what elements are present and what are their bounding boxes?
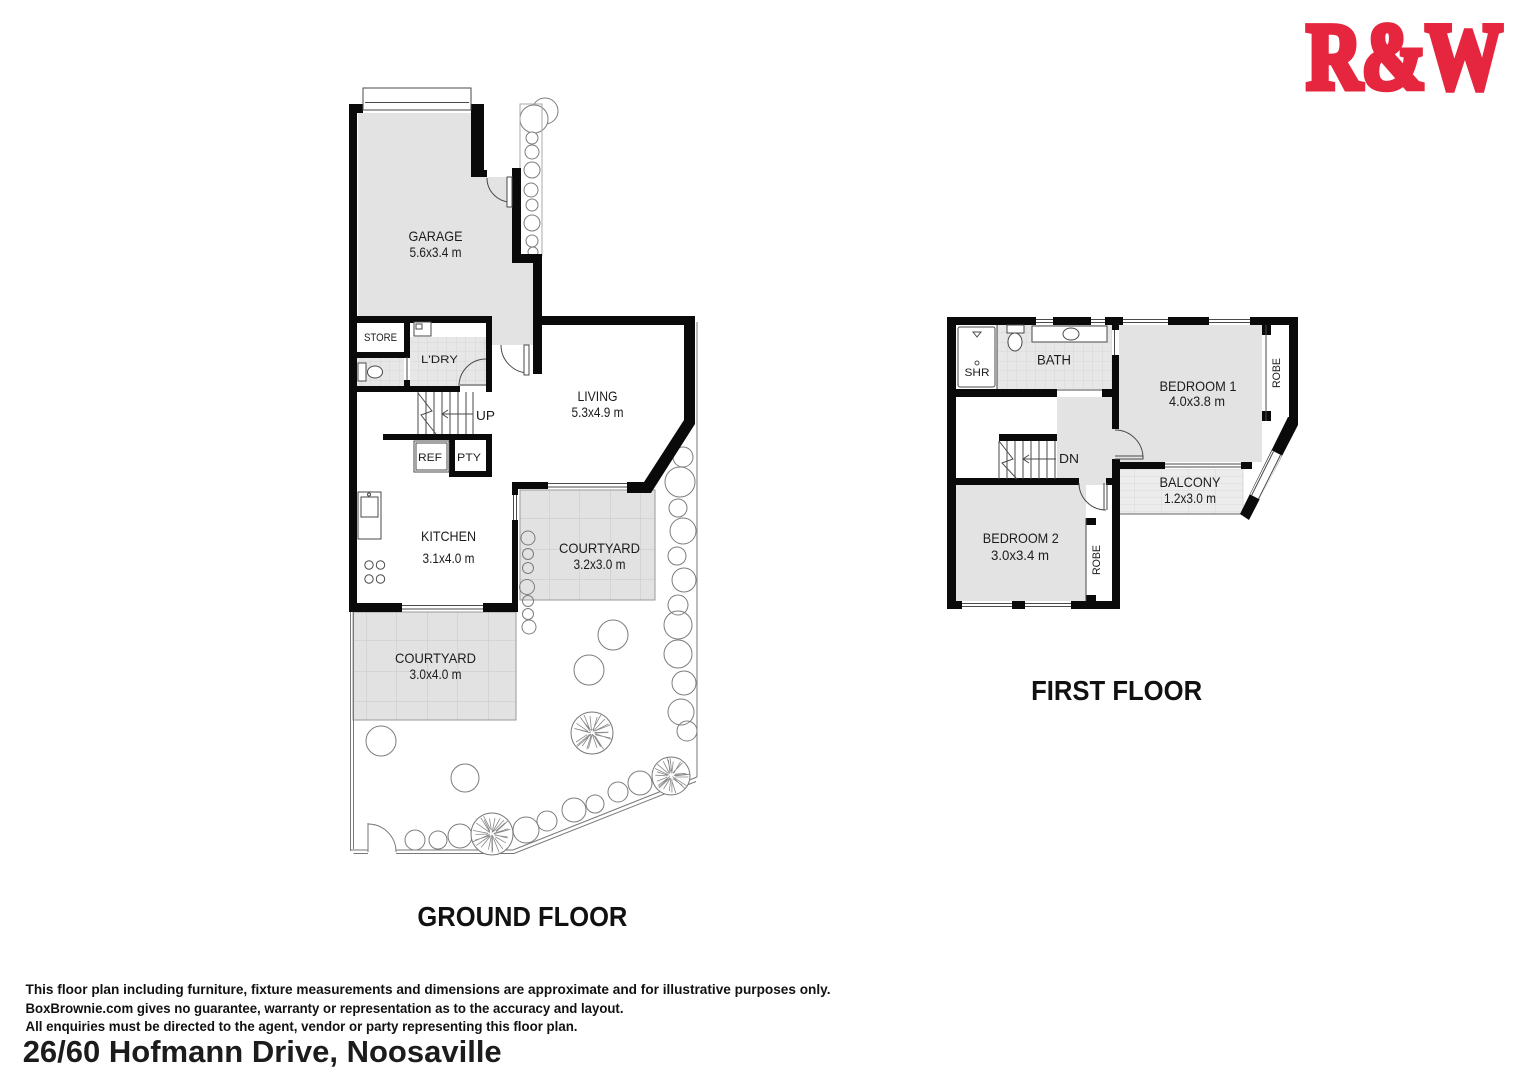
svg-text:ROBE: ROBE bbox=[1091, 545, 1103, 575]
svg-text:3.1x4.0 m: 3.1x4.0 m bbox=[423, 550, 475, 566]
svg-text:All enquiries must be directed: All enquiries must be directed to the ag… bbox=[26, 1019, 578, 1034]
svg-text:3.0x3.4 m: 3.0x3.4 m bbox=[991, 547, 1049, 563]
svg-text:DN: DN bbox=[1059, 451, 1079, 466]
svg-text:UP: UP bbox=[476, 408, 495, 423]
svg-text:L'DRY: L'DRY bbox=[421, 354, 459, 366]
svg-text:LIVING: LIVING bbox=[578, 388, 618, 404]
svg-text:COURTYARD: COURTYARD bbox=[559, 540, 640, 556]
svg-text:BoxBrownie.com gives no guaran: BoxBrownie.com gives no guarantee, warra… bbox=[26, 1001, 624, 1016]
svg-text:26/60 Hofmann Drive, Noosavill: 26/60 Hofmann Drive, Noosaville bbox=[23, 1034, 502, 1069]
svg-text:5.3x4.9 m: 5.3x4.9 m bbox=[572, 404, 624, 420]
svg-text:ROBE: ROBE bbox=[1271, 358, 1283, 388]
svg-text:This floor plan including furn: This floor plan including furniture, fix… bbox=[26, 982, 831, 997]
svg-text:SHR: SHR bbox=[965, 367, 990, 379]
svg-text:1.2x3.0 m: 1.2x3.0 m bbox=[1164, 490, 1216, 506]
svg-text:FIRST FLOOR: FIRST FLOOR bbox=[1031, 675, 1202, 706]
svg-text:GARAGE: GARAGE bbox=[409, 228, 463, 244]
svg-text:4.0x3.8 m: 4.0x3.8 m bbox=[1169, 393, 1225, 409]
svg-text:3.2x3.0 m: 3.2x3.0 m bbox=[574, 556, 626, 572]
svg-text:R&W: R&W bbox=[1307, 5, 1503, 109]
svg-text:GROUND FLOOR: GROUND FLOOR bbox=[417, 901, 627, 932]
svg-text:BEDROOM 2: BEDROOM 2 bbox=[983, 530, 1059, 546]
svg-text:3.0x4.0 m: 3.0x4.0 m bbox=[410, 666, 462, 682]
svg-text:STORE: STORE bbox=[364, 332, 397, 344]
svg-text:5.6x3.4 m: 5.6x3.4 m bbox=[410, 244, 462, 260]
svg-text:PTY: PTY bbox=[457, 452, 482, 464]
svg-text:BEDROOM 1: BEDROOM 1 bbox=[1160, 378, 1237, 394]
svg-text:REF: REF bbox=[418, 452, 442, 464]
svg-text:KITCHEN: KITCHEN bbox=[421, 528, 476, 544]
svg-text:COURTYARD: COURTYARD bbox=[395, 650, 476, 666]
svg-text:BATH: BATH bbox=[1037, 352, 1071, 368]
svg-text:BALCONY: BALCONY bbox=[1160, 474, 1222, 490]
